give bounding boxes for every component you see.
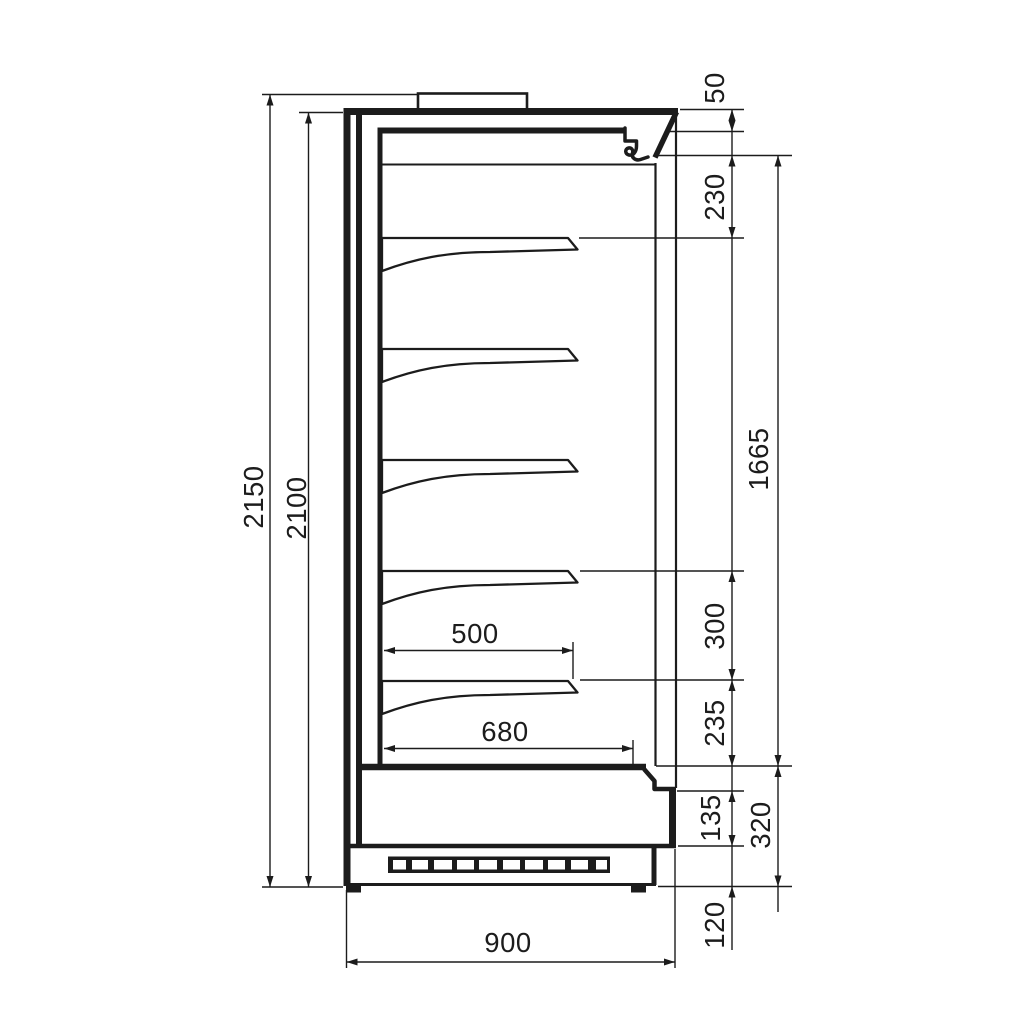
dimension-arrow — [775, 876, 782, 887]
dim-label-680: 680 — [481, 716, 528, 747]
dimension-arrow — [775, 755, 782, 766]
dimension-shelf-depth: 500 — [384, 618, 573, 679]
dimension-arrow — [729, 227, 736, 238]
dimension-arrow — [305, 876, 312, 887]
dim-label-320: 320 — [745, 801, 776, 848]
canopy-front-slant — [655, 112, 677, 158]
cabinet-outline — [344, 94, 679, 893]
dimension-arrow — [267, 876, 274, 887]
dim-label-300: 300 — [699, 602, 730, 649]
dim-label-235: 235 — [699, 699, 730, 746]
dim-label-120: 120 — [699, 901, 730, 948]
dimension-arrow — [729, 121, 736, 132]
dimension-arrow — [622, 745, 633, 752]
dimension-arrow — [729, 669, 736, 680]
dimension-arrow — [775, 766, 782, 777]
dim-label-2150: 2150 — [238, 465, 269, 528]
dimension-arrow — [384, 647, 395, 654]
dim-label-1665: 1665 — [743, 427, 774, 490]
air-curtain-nozzle — [625, 128, 648, 160]
drawing-canvas: 2150 2100 50 230 — [0, 0, 1024, 1024]
dimension-arrow — [729, 110, 736, 121]
dimension-arrow — [384, 745, 395, 752]
dimension-arrow — [729, 680, 736, 691]
dim-label-2100: 2100 — [281, 476, 312, 539]
ventilation-grille — [388, 857, 610, 874]
dimension-arrow — [729, 571, 736, 582]
dimension-deck-depth: 680 — [384, 716, 633, 765]
dim-label-900: 900 — [484, 927, 531, 958]
dimension-arrow — [347, 959, 358, 966]
shelf-4 — [382, 571, 578, 604]
dim-label-50: 50 — [699, 72, 730, 104]
dimension-arrow — [729, 887, 736, 898]
shelf-1 — [382, 238, 578, 271]
foot-rear — [346, 884, 361, 893]
dimension-arrow — [775, 156, 782, 167]
dimension-arrow — [729, 835, 736, 846]
dimension-arrow — [729, 156, 736, 167]
dim-label-135: 135 — [695, 794, 726, 841]
top-cap — [418, 94, 527, 110]
shelf-5 — [382, 681, 578, 714]
dimension-arrow — [664, 959, 675, 966]
dimension-arrow — [729, 791, 736, 802]
dimension-arrow — [305, 113, 312, 124]
cabinet-section-drawing: 2150 2100 50 230 — [0, 0, 1024, 1024]
shelf-3 — [382, 460, 578, 493]
foot-front — [631, 884, 646, 893]
dimension-arrow — [729, 755, 736, 766]
dimension-arrow — [562, 647, 573, 654]
shelf-2 — [382, 349, 578, 382]
deck-front-step — [644, 769, 675, 789]
dim-label-230: 230 — [699, 173, 730, 220]
dimension-arrow — [267, 95, 274, 106]
dim-label-500: 500 — [451, 618, 498, 649]
dimension-right-stack: 50 230 1665 300 235 135 320 120 — [579, 72, 792, 950]
